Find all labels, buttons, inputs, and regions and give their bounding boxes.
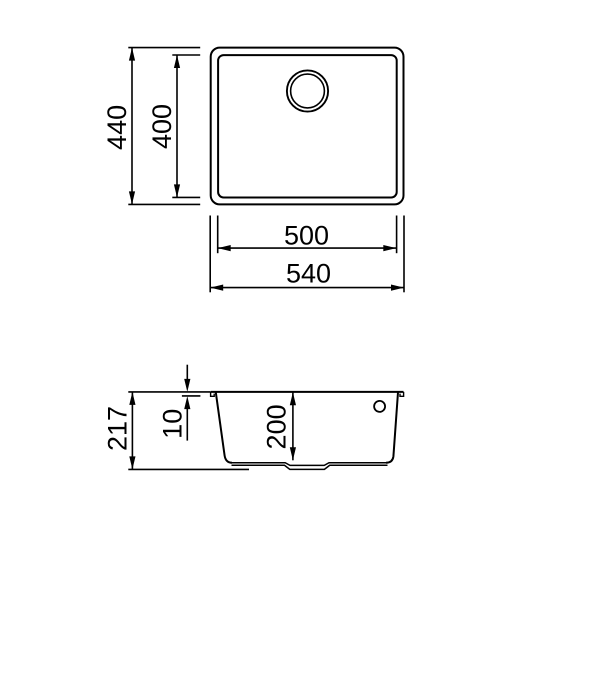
- svg-text:400: 400: [147, 104, 177, 149]
- svg-text:440: 440: [102, 105, 132, 150]
- svg-text:200: 200: [262, 404, 292, 449]
- svg-text:217: 217: [103, 406, 133, 451]
- svg-text:540: 540: [286, 258, 331, 288]
- svg-text:10: 10: [158, 409, 188, 439]
- svg-text:500: 500: [284, 221, 329, 251]
